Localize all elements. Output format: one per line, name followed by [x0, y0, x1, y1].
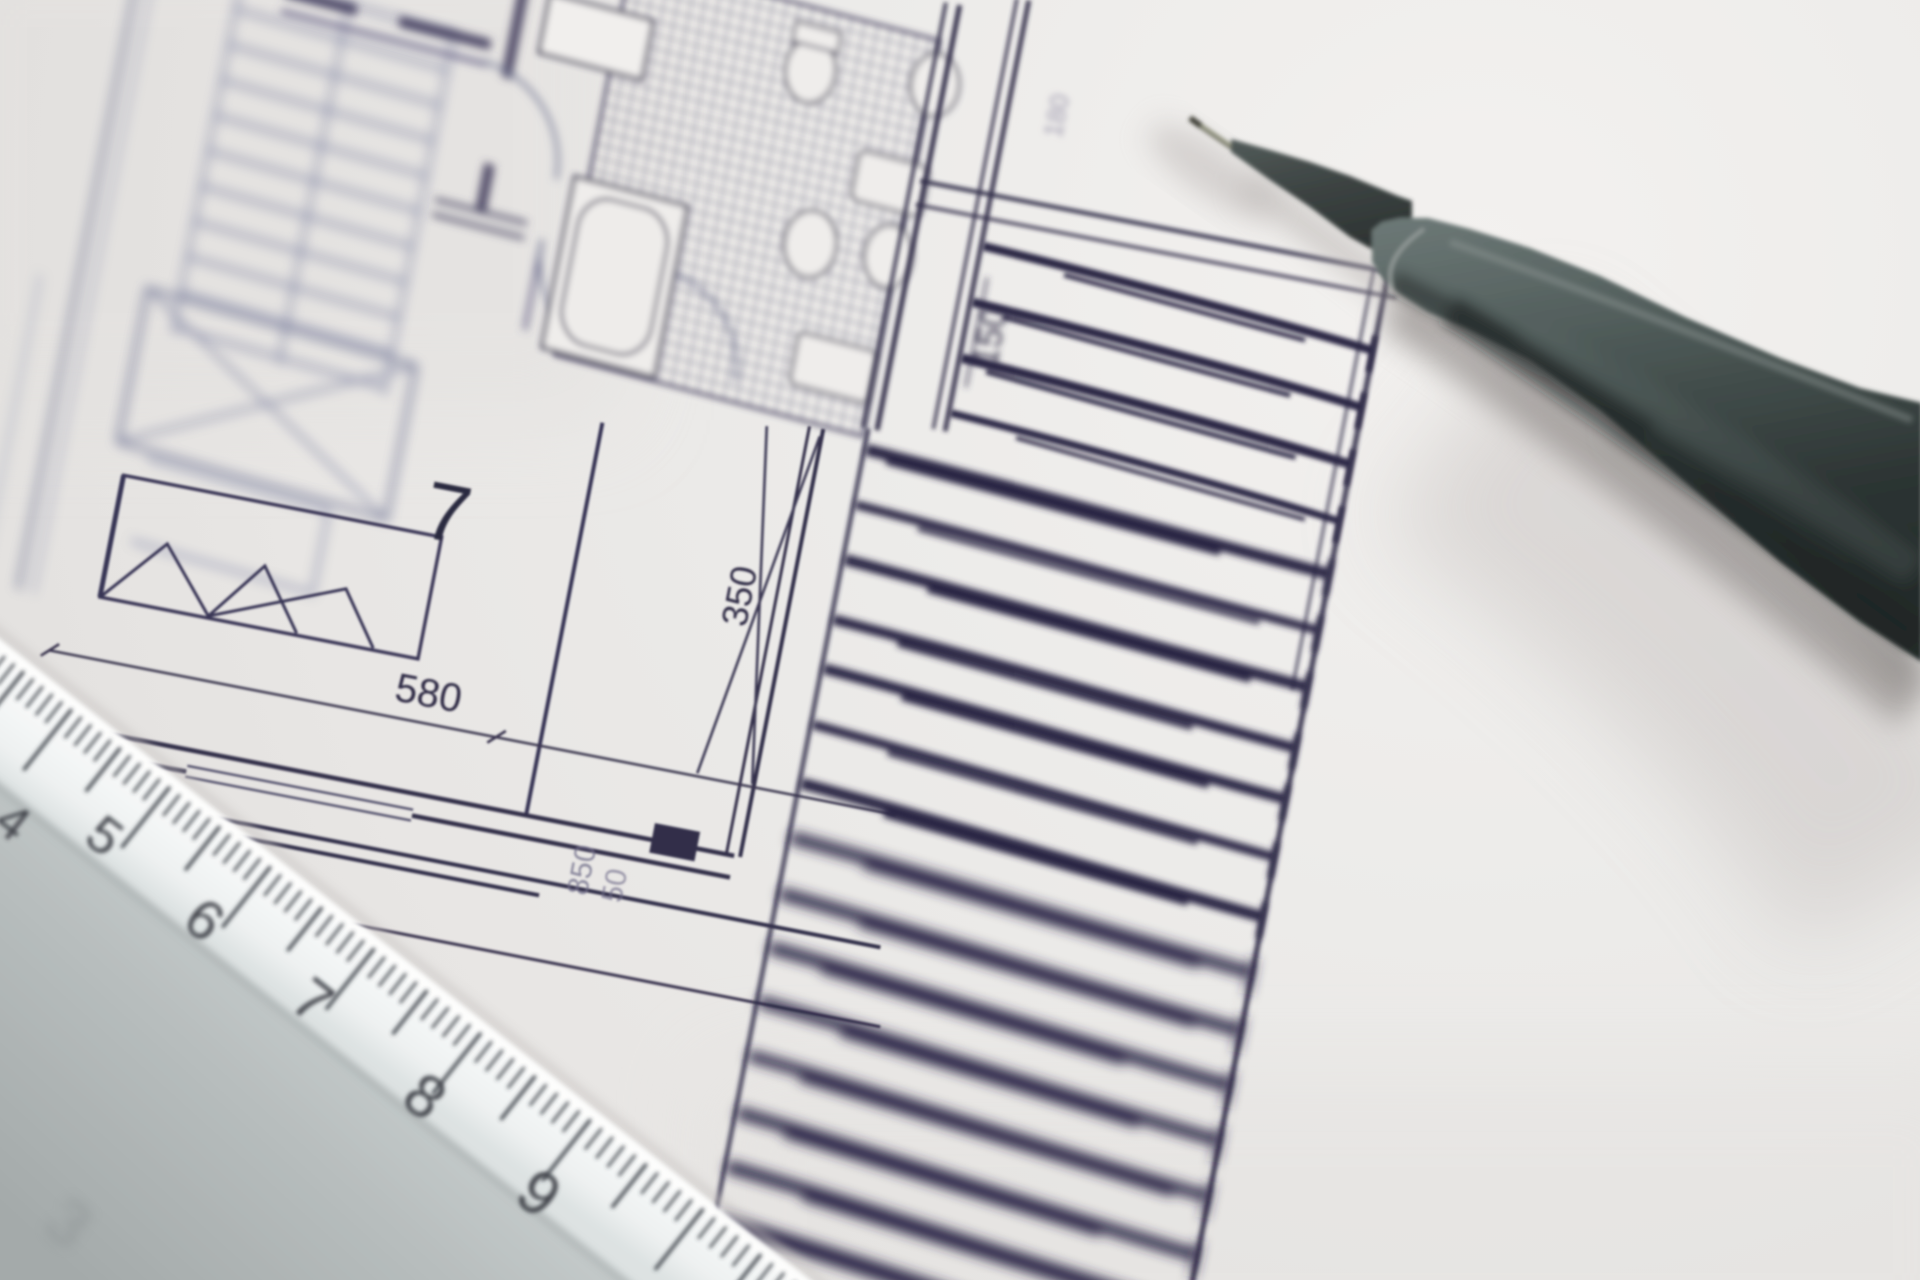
svg-text:50: 50 — [595, 866, 634, 905]
